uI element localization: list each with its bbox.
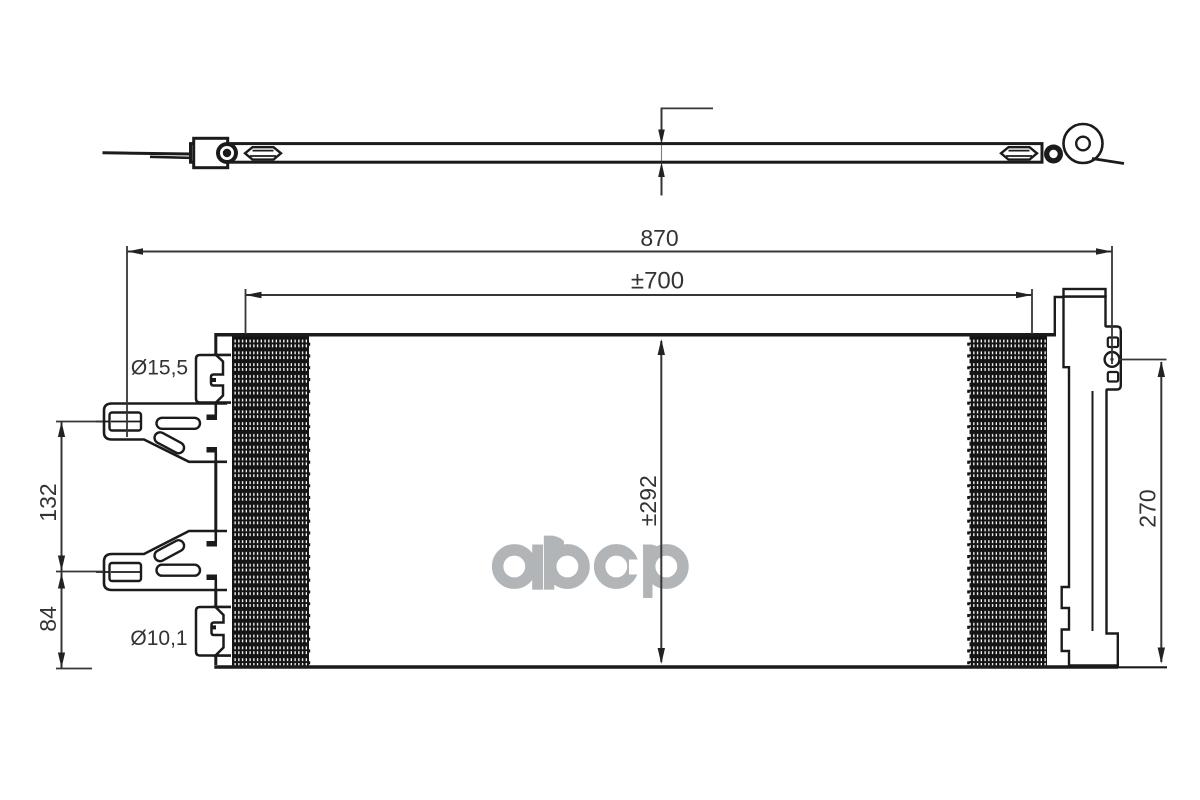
svg-text:870: 870	[640, 225, 678, 251]
svg-text:±292: ±292	[635, 475, 661, 526]
svg-text:Ø10,1: Ø10,1	[130, 627, 187, 650]
svg-text:Ø15,5: Ø15,5	[131, 357, 188, 380]
svg-text:±700: ±700	[631, 268, 684, 295]
svg-text:84: 84	[35, 606, 61, 632]
svg-text:132: 132	[35, 483, 61, 521]
svg-text:270: 270	[1135, 489, 1161, 527]
